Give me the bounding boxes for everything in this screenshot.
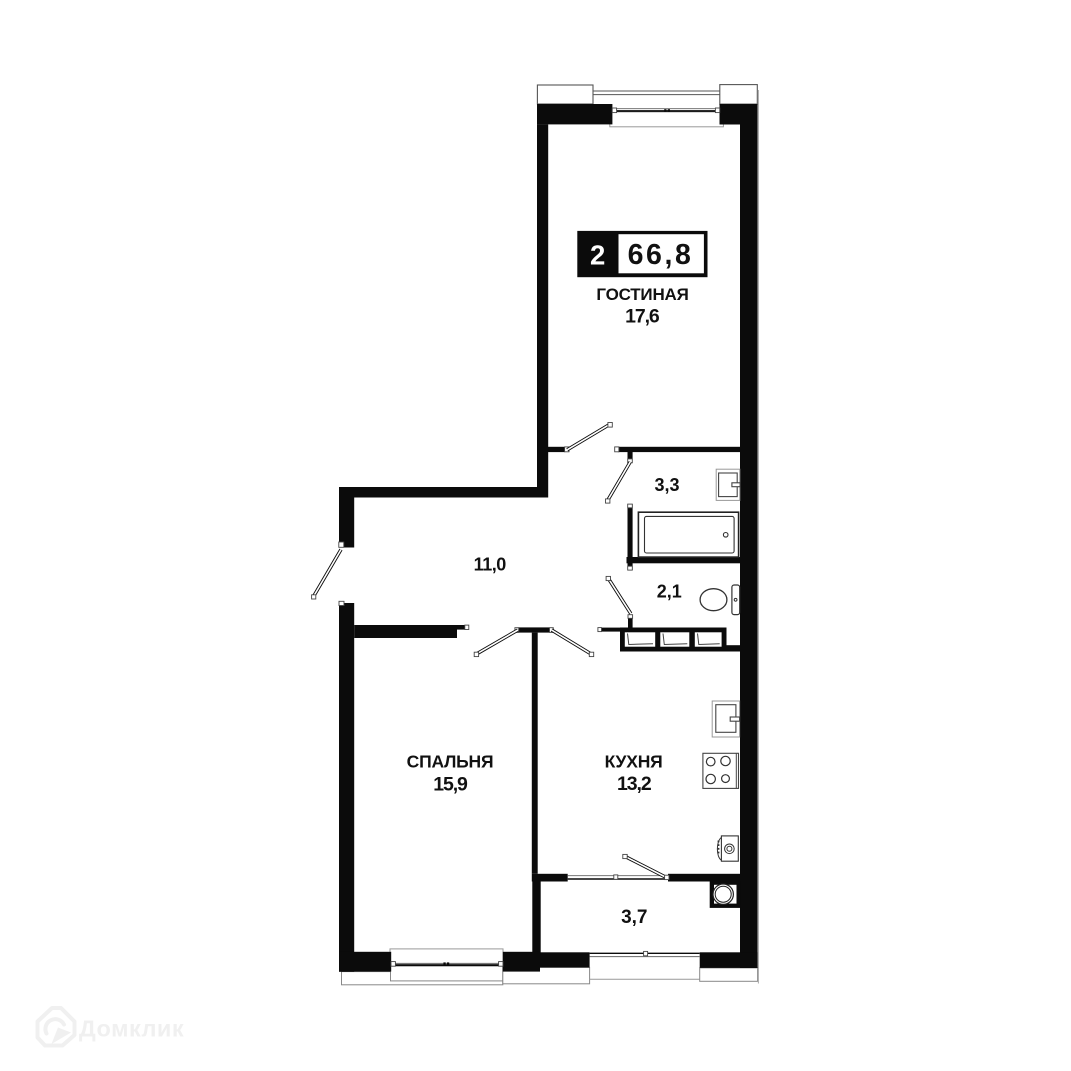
svg-text:66,8: 66,8 (628, 239, 694, 271)
svg-text:3,3: 3,3 (654, 475, 679, 495)
svg-text:15,9: 15,9 (433, 773, 468, 795)
svg-text:11,0: 11,0 (474, 554, 507, 574)
svg-text:3,7: 3,7 (621, 907, 647, 928)
svg-text:ГОСТИНАЯ: ГОСТИНАЯ (596, 285, 688, 304)
svg-text:КУХНЯ: КУХНЯ (605, 752, 663, 772)
svg-text:СПАЛЬНЯ: СПАЛЬНЯ (407, 752, 494, 772)
svg-text:2,1: 2,1 (657, 582, 682, 602)
svg-text:13,2: 13,2 (617, 773, 652, 795)
svg-text:2: 2 (590, 240, 605, 271)
svg-text:Домклик: Домклик (79, 1016, 184, 1042)
svg-text:17,6: 17,6 (625, 306, 660, 328)
